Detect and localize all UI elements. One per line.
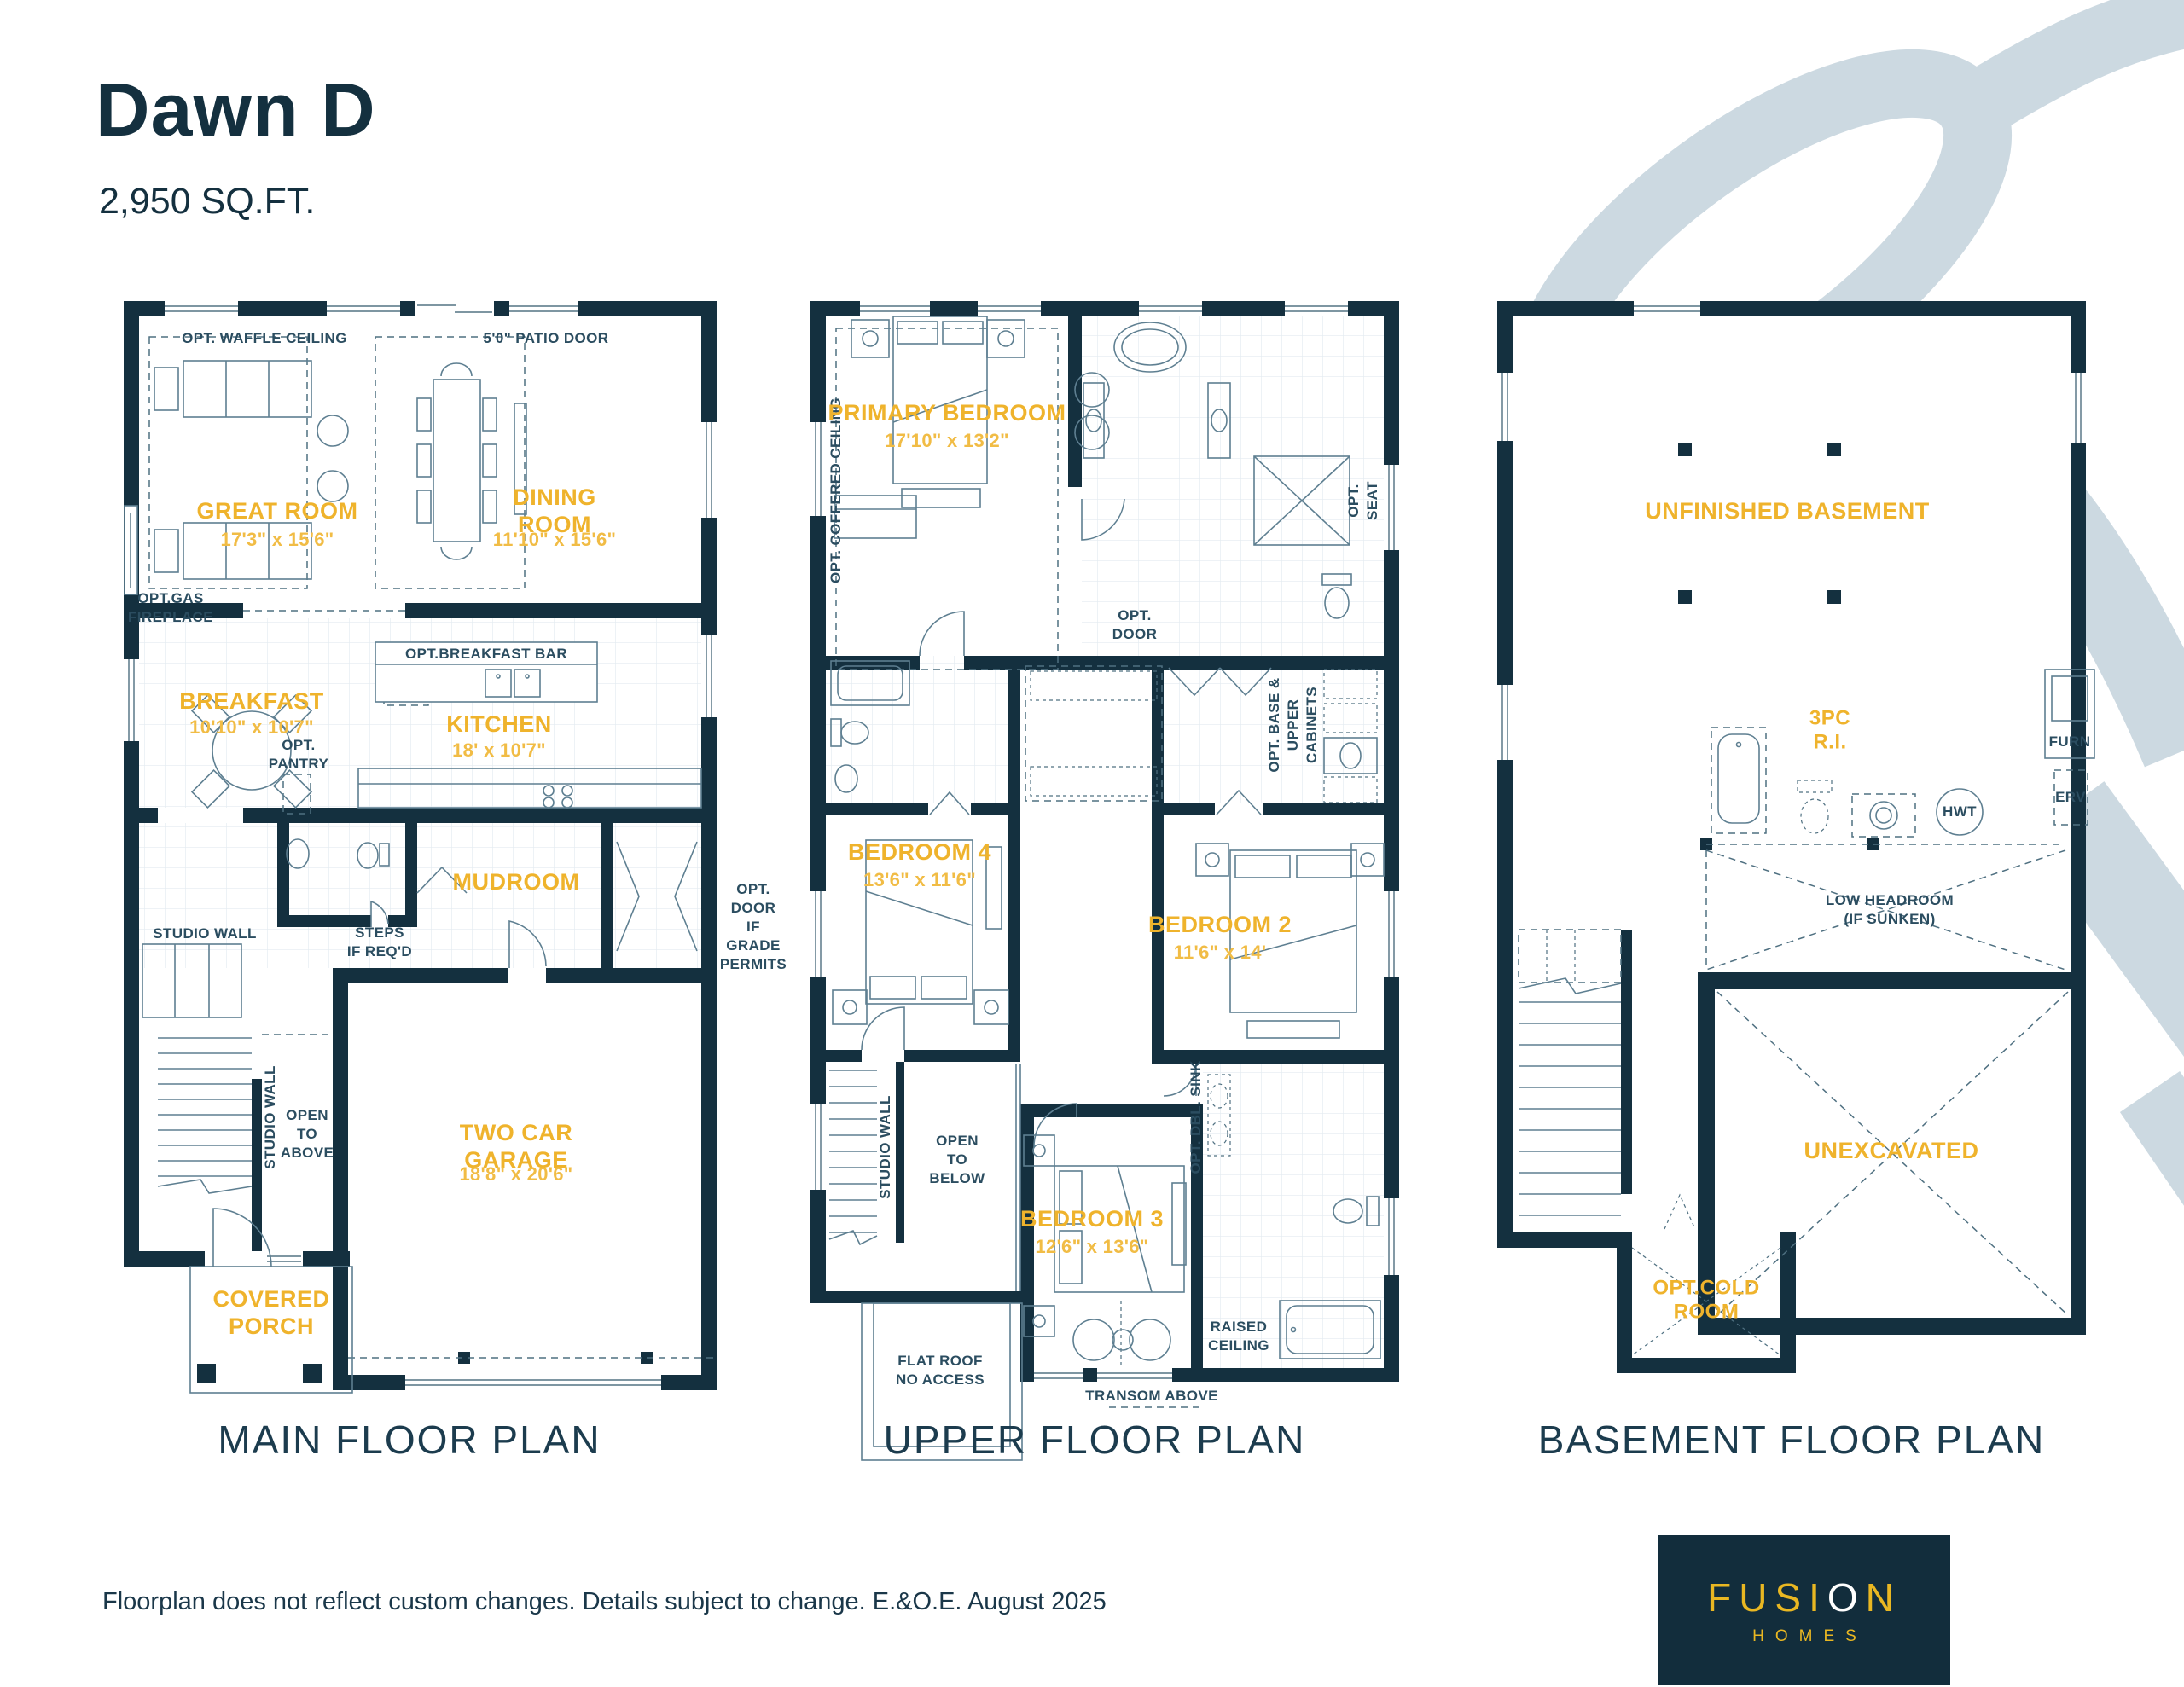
room-dims-great-room: 17'3" x 15'6"	[220, 529, 334, 551]
square-footage: 2,950 SQ.FT.	[99, 181, 315, 223]
title-main-floor-plan: MAIN FLOOR PLAN	[218, 1417, 601, 1463]
room-label-covered-porch: COVERED PORCH	[212, 1286, 329, 1341]
annotation-furnace: FURN	[2049, 733, 2091, 751]
annotation-studio-wall: STUDIO WALL	[876, 1095, 895, 1199]
main-floor-drawing	[124, 294, 717, 1403]
room-dims-kitchen: 18' x 10'7"	[452, 739, 546, 762]
annotation-patio-door: 5'0" PATIO DOOR	[484, 329, 609, 348]
title-basement-floor-plan: BASEMENT FLOOR PLAN	[1538, 1417, 2045, 1463]
disclaimer-text: Floorplan does not reflect custom change…	[102, 1588, 1107, 1616]
room-label-bedroom-4: BEDROOM 4	[848, 839, 991, 867]
logo-brand-pre: FUSI	[1707, 1575, 1827, 1620]
room-label-bedroom-3: BEDROOM 3	[1020, 1206, 1164, 1233]
upper-floor-plan: OPT. COFFERED CEILING PRIMARY BEDROOM 17…	[810, 294, 1399, 1394]
annotation-breakfast-bar: OPT.BREAKFAST BAR	[405, 645, 567, 664]
annotation-raised-ceiling: RAISED CEILING	[1208, 1318, 1269, 1355]
annotation-gas-fireplace: OPT.GAS FIREPLACE	[128, 589, 213, 627]
floorplan-sheet: Dawn D 2,950 SQ.FT.	[0, 0, 2184, 1687]
room-label-breakfast: BREAKFAST	[179, 688, 324, 716]
annotation-cabinets: OPT. BASE & UPPER CABINETS	[1265, 672, 1321, 778]
room-label-mudroom: MUDROOM	[453, 869, 580, 896]
basement-floor-plan: UNFINISHED BASEMENT 3PC R.I. FURN ERV HW…	[1497, 294, 2094, 1369]
annotation-low-headroom: LOW HEADROOM (IF SUNKEN)	[1826, 891, 1954, 929]
room-label-bedroom-2: BEDROOM 2	[1148, 912, 1292, 939]
room-label-kitchen: KITCHEN	[446, 711, 552, 739]
room-label-unexcavated: UNEXCAVATED	[1804, 1138, 1978, 1165]
fusion-homes-logo: FUSION HOMES	[1658, 1535, 1950, 1685]
logo-brand-post: N	[1866, 1575, 1902, 1620]
room-dims-bedroom-4: 13'6" x 11'6"	[863, 869, 976, 891]
annotation-opt-door: OPT. DOOR	[1112, 606, 1158, 644]
title-upper-floor-plan: UPPER FLOOR PLAN	[884, 1417, 1306, 1463]
room-label-primary-bedroom: PRIMARY BEDROOM	[828, 400, 1066, 427]
annotation-studio-wall-h: STUDIO WALL	[153, 925, 257, 943]
annotation-flat-roof: FLAT ROOF NO ACCESS	[896, 1352, 985, 1389]
annotation-dbl-sink: OPT. DBL. SINK	[1187, 1060, 1205, 1174]
annotation-pantry: OPT. PANTRY	[269, 736, 328, 774]
room-dims-bedroom-3: 12'6" x 13'6"	[1035, 1236, 1148, 1258]
annotation-opt-seat: OPT. SEAT	[1345, 481, 1382, 520]
annotation-hwt: HWT	[1943, 803, 1977, 821]
room-label-unfinished-basement: UNFINISHED BASEMENT	[1645, 498, 1930, 525]
annotation-waffle-ceiling: OPT. WAFFLE CEILING	[182, 329, 347, 348]
annotation-erv: ERV	[2055, 788, 2086, 807]
annotation-open-to-above: OPEN TO ABOVE	[281, 1106, 334, 1162]
room-dims-dining-room: 11'10" x 15'6"	[493, 529, 616, 551]
annotation-transom: TRANSOM ABOVE	[1085, 1387, 1218, 1406]
room-dims-primary-bedroom: 17'10" x 13'2"	[885, 430, 1009, 452]
room-dims-bedroom-2: 11'6" x 14'	[1174, 942, 1267, 964]
room-dims-garage: 18'8" x 20'6"	[459, 1163, 572, 1186]
main-floor-plan: OPT. WAFFLE CEILING 5'0" PATIO DOOR GREA…	[124, 294, 717, 1403]
annotation-steps: STEPS IF REQ'D	[347, 924, 412, 961]
room-label-cold-room: OPT.COLD ROOM	[1653, 1277, 1759, 1325]
annotation-open-to-below: OPEN TO BELOW	[929, 1132, 985, 1188]
room-label-great-room: GREAT ROOM	[197, 498, 358, 525]
logo-sub: HOMES	[1741, 1627, 1867, 1646]
basement-floor-drawing	[1497, 294, 2094, 1369]
room-label-3pc-ri: 3PC R.I.	[1809, 707, 1850, 756]
annotation-door-grade: OPT. DOOR IF GRADE PERMITS	[720, 880, 787, 974]
page-title: Dawn D	[96, 67, 376, 154]
logo-brand-o: O	[1827, 1575, 1866, 1620]
annotation-studio-wall-v: STUDIO WALL	[261, 1065, 280, 1169]
logo-brand: FUSION	[1707, 1574, 1902, 1620]
